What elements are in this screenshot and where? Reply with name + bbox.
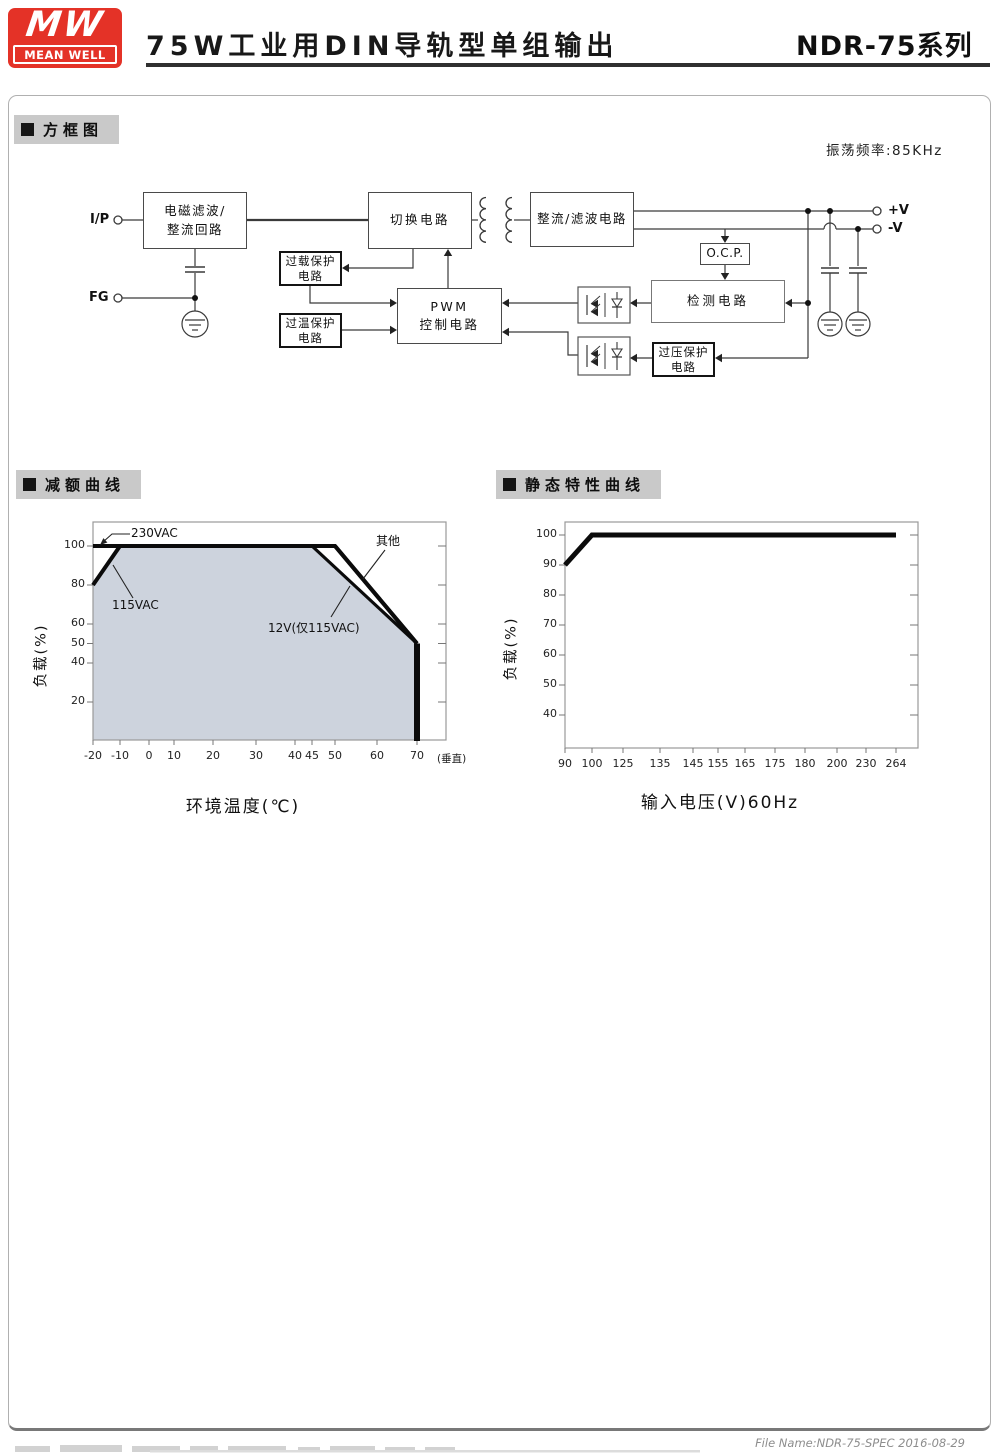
transformer-coil xyxy=(480,198,486,243)
flow-arrow xyxy=(390,326,397,334)
earth-ground-icon xyxy=(846,312,870,336)
terminal-label-vminus: -V xyxy=(888,221,903,236)
page-bottom-artifact xyxy=(60,1445,122,1452)
y-tick-label: 40 xyxy=(523,707,557,720)
series-name: NDR-75系列 xyxy=(796,24,973,63)
junction-dot xyxy=(805,300,811,306)
terminal-circle xyxy=(873,225,881,233)
logo-monogram: MW xyxy=(5,5,125,45)
curve-annotation: 230VAC xyxy=(131,526,178,540)
x-tick-label: 125 xyxy=(603,757,643,770)
section-label: 静态特性曲线 xyxy=(525,474,645,495)
y-tick-label: 50 xyxy=(523,677,557,690)
logo-brand-name: MEAN WELL xyxy=(13,45,117,64)
x-tick-label: 10 xyxy=(154,749,194,762)
section-square-icon xyxy=(503,478,516,491)
y-tick-label: 100 xyxy=(523,527,557,540)
junction-dot xyxy=(827,208,833,214)
terminal-circle xyxy=(873,207,881,215)
annotation-leader xyxy=(363,550,385,579)
y-tick-label: 70 xyxy=(523,617,557,630)
wire xyxy=(310,286,395,303)
y-tick-label: 40 xyxy=(51,655,85,668)
x-tick-label: 30 xyxy=(236,749,276,762)
junction-dot xyxy=(855,226,861,232)
x-axis-suffix-label: (垂直) xyxy=(437,751,497,766)
x-tick-label: 50 xyxy=(315,749,355,762)
derating-shaded-region xyxy=(93,546,417,740)
flow-arrow xyxy=(630,354,637,362)
page-bottom-artifact xyxy=(15,1446,50,1452)
wire xyxy=(344,249,413,268)
block-switching: 切换电路 xyxy=(368,192,472,249)
terminal-label-vplus: +V xyxy=(888,203,909,218)
section-square-icon xyxy=(23,478,36,491)
optocoupler-icon xyxy=(578,287,630,323)
block-overtemp-protection: 过温保护 电路 xyxy=(279,313,342,348)
chart-frame xyxy=(565,522,918,748)
flow-arrow xyxy=(721,273,729,280)
annotation-leader xyxy=(103,534,130,542)
earth-ground-icon xyxy=(182,311,208,337)
x-tick-label: 20 xyxy=(193,749,233,762)
curve-annotation: 12V(仅115VAC) xyxy=(268,619,360,636)
optocoupler-icon xyxy=(578,337,630,375)
block-overvoltage-protection: 过压保护 电路 xyxy=(652,342,715,377)
curve-负载 xyxy=(565,535,896,565)
header-rule xyxy=(146,63,990,67)
y-tick-label: 60 xyxy=(523,647,557,660)
transformer-coil xyxy=(506,198,512,243)
wire xyxy=(504,332,578,355)
terminal-circle xyxy=(114,294,122,302)
curve-annotation: 其他 xyxy=(376,532,400,549)
block-overload-protection: 过载保护 电路 xyxy=(279,251,342,286)
static-y-axis-label: 负载(%) xyxy=(500,584,521,714)
y-tick-label: 100 xyxy=(51,538,85,551)
section-label: 方框图 xyxy=(43,119,103,140)
block-ocp: O.C.P. xyxy=(700,243,750,265)
flow-arrow xyxy=(715,354,722,362)
junction-dot xyxy=(192,295,198,301)
y-tick-label: 20 xyxy=(51,694,85,707)
x-tick-label: 70 xyxy=(397,749,437,762)
y-tick-label: 80 xyxy=(523,587,557,600)
section-header-block-diagram: 方框图 xyxy=(14,115,119,144)
flow-arrow xyxy=(785,299,792,307)
y-tick-label: 90 xyxy=(523,557,557,570)
flow-arrow xyxy=(390,299,397,307)
x-tick-label: 60 xyxy=(357,749,397,762)
terminal-label-fg: FG xyxy=(89,290,109,305)
section-header-static: 静态特性曲线 xyxy=(496,470,661,499)
block-detection: 检测电路 xyxy=(651,280,785,323)
x-tick-label: 264 xyxy=(876,757,916,770)
flow-arrow xyxy=(721,236,729,243)
datasheet-page: { "header": { "logo": { "monogram": "MW"… xyxy=(0,0,1000,1455)
page-bottom-artifact xyxy=(150,1450,700,1453)
curve-annotation: 115VAC xyxy=(112,598,159,612)
section-header-derating: 减额曲线 xyxy=(16,470,141,499)
block-emi-filter: 电磁滤波/ 整流回路 xyxy=(143,192,247,249)
terminal-label-input: I/P xyxy=(90,212,109,227)
earth-ground-icon xyxy=(818,312,842,336)
page-title: 75W工业用DIN导轨型单组输出 xyxy=(146,24,618,63)
block-rectifier-filter: 整流/滤波电路 xyxy=(530,192,634,247)
junction-dot xyxy=(805,208,811,214)
flow-arrow xyxy=(444,249,452,256)
flow-arrow xyxy=(630,299,637,307)
y-tick-label: 80 xyxy=(51,577,85,590)
derating-x-axis-label: 环境温度(℃) xyxy=(143,792,343,817)
static-x-axis-label: 输入电压(V)60Hz xyxy=(620,788,820,813)
footer-file-name: File Name:NDR-75-SPEC 2016-08-29 xyxy=(540,1436,965,1450)
meanwell-logo: MW MEAN WELL xyxy=(8,8,122,68)
block-pwm-control: PWM 控制电路 xyxy=(397,288,502,344)
terminal-circle xyxy=(114,216,122,224)
y-tick-label: 60 xyxy=(51,616,85,629)
y-tick-label: 50 xyxy=(51,636,85,649)
section-square-icon xyxy=(21,123,34,136)
flow-arrow xyxy=(502,299,509,307)
section-label: 减额曲线 xyxy=(45,474,125,495)
flow-arrow xyxy=(342,264,349,272)
derating-y-axis-label: 负载(%) xyxy=(30,591,51,721)
oscillation-frequency-note: 振荡频率:85KHz xyxy=(826,139,943,159)
flow-arrow xyxy=(502,328,509,336)
